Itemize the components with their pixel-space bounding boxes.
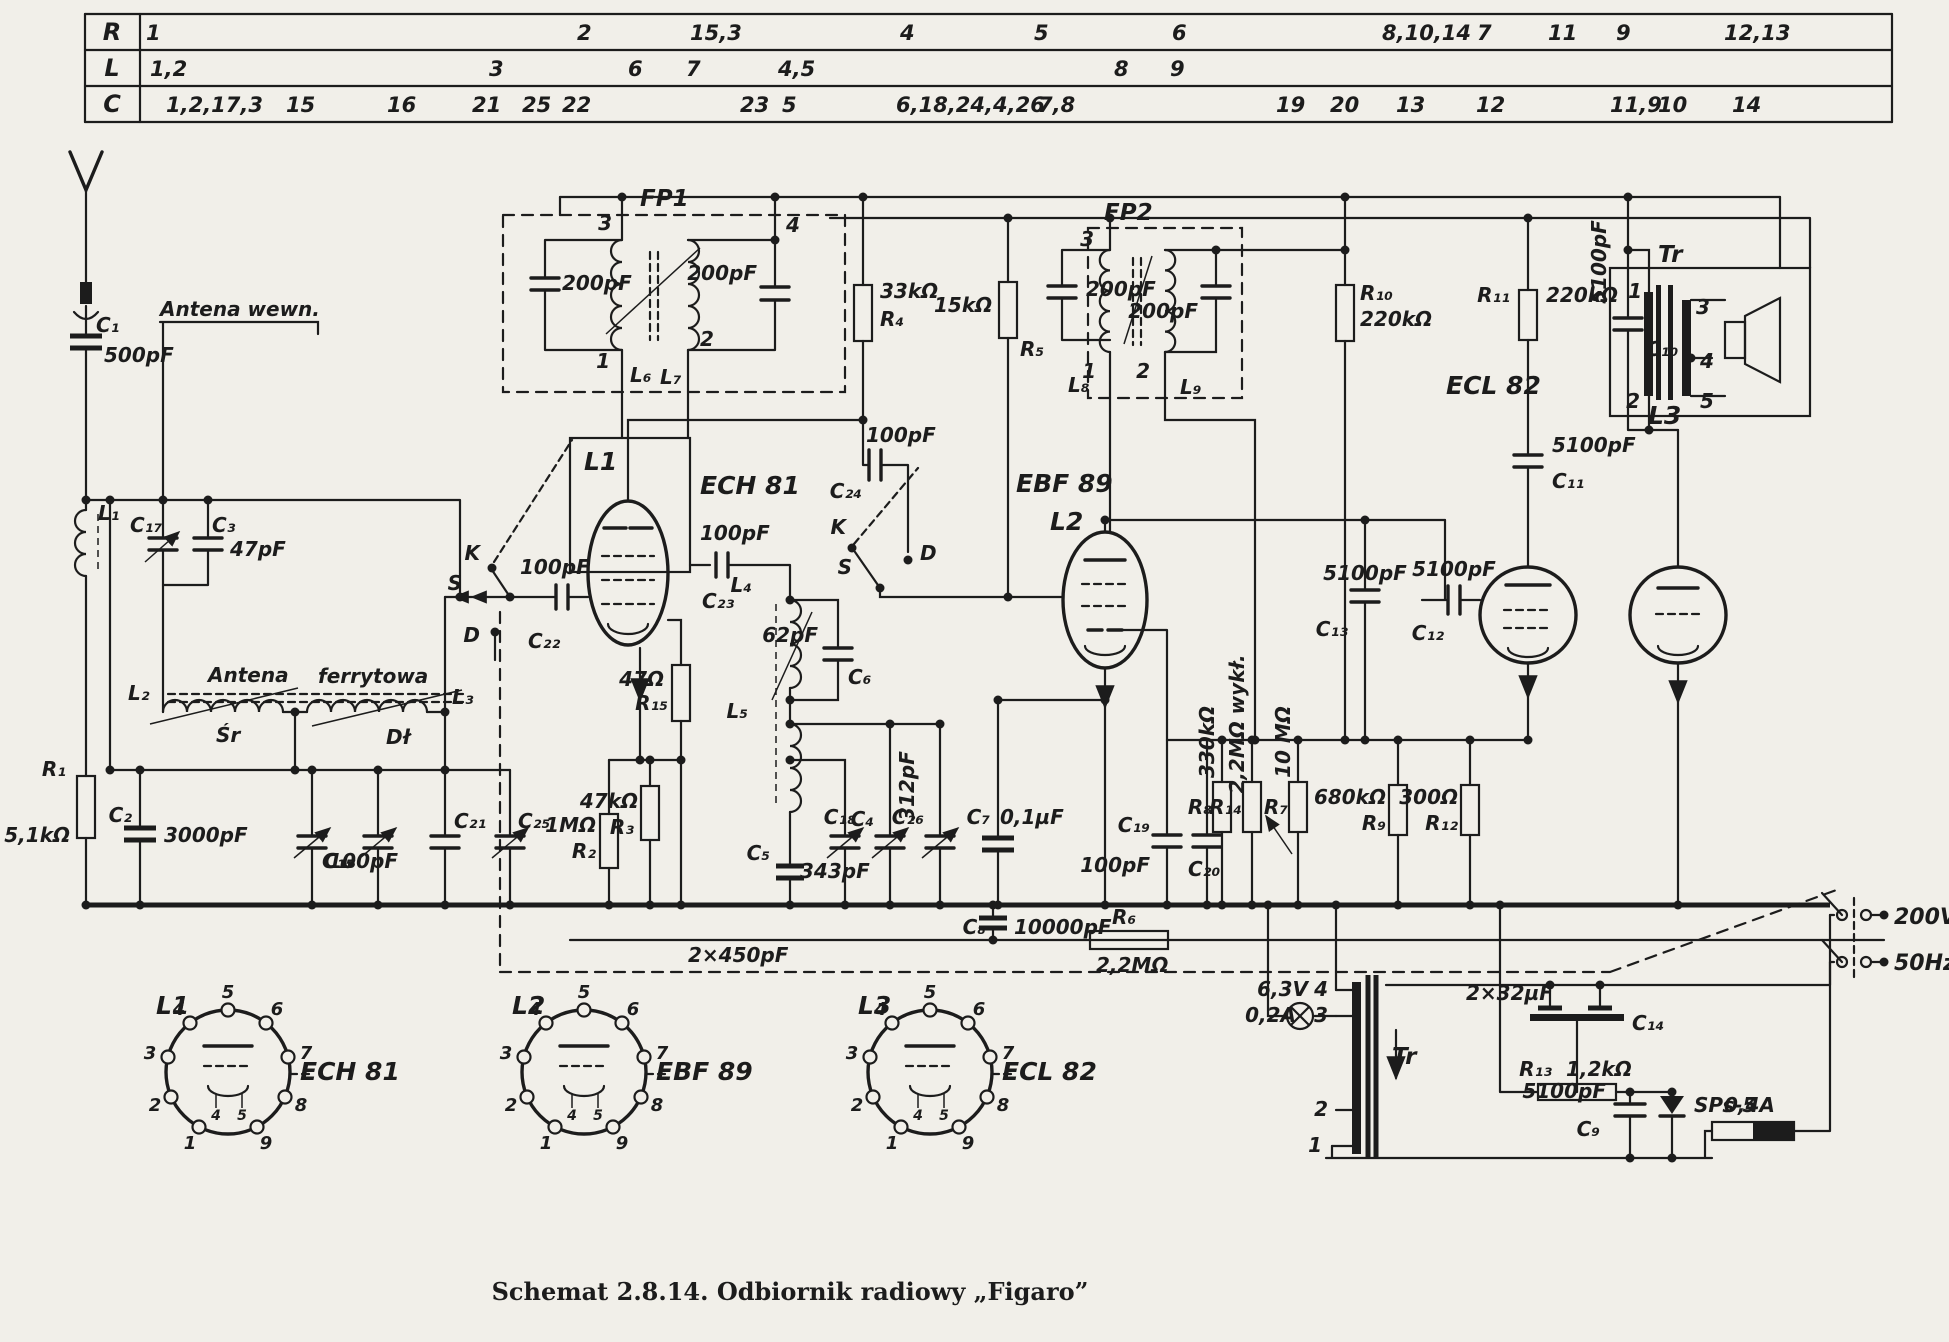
schematic-label: L₇	[660, 365, 682, 389]
schematic-label: 2	[700, 327, 714, 351]
schematic-label: 10 MΩ	[1271, 706, 1295, 778]
schematic-label: 47pF	[229, 537, 286, 561]
schematic-label: C₁₇	[130, 513, 162, 537]
schematic-label: 6	[973, 999, 986, 1020]
table-cell: 8,10,14	[1382, 21, 1471, 45]
schematic-label: R₁₄	[1209, 795, 1242, 819]
schematic-label: R₁₁	[1477, 283, 1510, 307]
reference-table-text: R1215,34568,10,14711912,13L1,23674,589C1…	[103, 18, 1791, 118]
schematic-label: 47kΩ	[579, 789, 638, 813]
schematic-label: 3	[1080, 227, 1094, 251]
schematic-label: C₁₁	[1552, 469, 1584, 493]
schematic-label: 5100pF	[1587, 220, 1611, 304]
schematic-label: C₃	[212, 513, 236, 537]
schematic-label: 100pF	[1080, 853, 1150, 877]
schematic-label: ECL 82	[1002, 1057, 1097, 1086]
schematic-label: Antena wewn.	[158, 297, 320, 321]
table-cell: 10	[1658, 93, 1687, 117]
schematic-label: 4	[528, 999, 542, 1020]
table-cell: 12	[1476, 93, 1505, 117]
table-cell: 5	[1034, 21, 1049, 45]
schematic-label: C₁₉	[1118, 813, 1150, 837]
schematic-label: 2×32µF	[1466, 981, 1553, 1005]
table-cell: 12,13	[1724, 21, 1790, 45]
schematic-label: 8	[651, 1095, 664, 1116]
schematic-label: 6	[627, 999, 640, 1020]
schematic-label: 3	[500, 1043, 513, 1064]
schematic-label: C₂₂	[528, 629, 560, 653]
schematic-label: 2,2MΩ wykł.	[1225, 654, 1249, 793]
schematic-label: 7	[656, 1043, 669, 1064]
schematic-label: 0,4A	[1724, 1093, 1775, 1117]
schematic-label: C₆	[848, 665, 872, 689]
schematic-label: R₇	[1264, 795, 1288, 819]
schematic-label: 200pF	[1086, 277, 1156, 301]
schematic-label: 9	[962, 1133, 975, 1154]
schematic-label: 0,2A	[1245, 1003, 1296, 1027]
schematic-label: 2	[1314, 1097, 1328, 1121]
schematic-label: 3	[144, 1043, 157, 1064]
schematic-label: 8	[295, 1095, 308, 1116]
schematic-label: R₁	[42, 757, 66, 781]
schematic-label: C₁₄	[1632, 1011, 1664, 1035]
schematic-label: 200pF	[1128, 299, 1198, 323]
schematic-label: 2	[1136, 359, 1150, 383]
schematic-label: 3000pF	[164, 823, 248, 847]
schematic-label: 220kΩ	[1360, 307, 1432, 331]
schematic-label: 200pF	[687, 261, 757, 285]
schematic-label: 5	[222, 982, 235, 1003]
schematic-label: R₆	[1112, 905, 1136, 929]
schematic-label: EBF 89	[656, 1057, 753, 1086]
schematic-label: 4	[1699, 349, 1714, 373]
schematic-label: 5	[939, 1108, 949, 1124]
caption: Schemat 2.8.14. Odbiornik radiowy „Figar…	[492, 1277, 1089, 1306]
schematic-label: 2	[505, 1095, 518, 1116]
schematic-label: 5,1kΩ	[4, 823, 70, 847]
table-cell: 7	[1477, 21, 1492, 45]
schematic-label: D	[463, 623, 480, 647]
table-cell: 19	[1276, 93, 1305, 117]
schematic-label: 2,2MΩ	[1096, 953, 1168, 977]
schematic-label: L₂	[128, 681, 150, 705]
schematic-label: C₁₂	[1412, 621, 1444, 645]
schematic-label: 330kΩ	[1195, 706, 1219, 778]
schematic-label: S	[838, 555, 852, 579]
schematic-label: 0,1µF	[1000, 805, 1064, 829]
schematic-label: 200pF	[562, 271, 632, 295]
table-cell: 21	[472, 93, 501, 117]
schematic-label: L1	[584, 447, 617, 476]
schematic-label: 4	[210, 1108, 221, 1124]
schematic-label: ECH 81	[300, 1057, 400, 1086]
schematic-label: 2×450pF	[688, 943, 789, 967]
schematic-label: 100pF	[520, 555, 590, 579]
schematic-label: 7	[1002, 1043, 1015, 1064]
schematic-label: 1	[1308, 1133, 1322, 1157]
radio-schematic-svg: R1215,34568,10,14711912,13L1,23674,589C1…	[0, 0, 1949, 1342]
schematic-label: C₁₃	[1316, 617, 1348, 641]
schematic-label: 100pF	[328, 849, 398, 873]
schematic-label: 33kΩ	[880, 279, 938, 303]
table-cell: 14	[1732, 93, 1761, 117]
schematic-label: 5100pF	[1323, 561, 1407, 585]
schematic-label: R₃	[610, 815, 634, 839]
schematic-label: 5	[1700, 389, 1714, 413]
table-cell: 15,3	[690, 21, 742, 45]
schematic-label: C₂₆	[892, 805, 924, 829]
schematic-label: R₁₀	[1360, 281, 1393, 305]
schematic-label: 680kΩ	[1314, 785, 1386, 809]
table-cell: 7	[686, 57, 701, 81]
schematic-label: C₂₁	[454, 809, 486, 833]
schematic-label: R₁₃	[1519, 1057, 1552, 1081]
schematic-label: L₅	[726, 699, 748, 723]
table-cell: 6,18,24,4,26	[896, 93, 1045, 117]
table-cell: 6	[628, 57, 643, 81]
table-cell: 23	[740, 93, 769, 117]
schematic-label: 3	[598, 211, 612, 235]
schematic-label: 3	[846, 1043, 859, 1064]
table-row-header: R	[103, 18, 121, 46]
table-cell: 25	[522, 93, 551, 117]
schematic-label: 5	[593, 1108, 603, 1124]
schematic-label: C₂₀	[1188, 857, 1220, 881]
schematic-label: 300Ω	[1399, 785, 1458, 809]
schematic-label: 4	[785, 213, 800, 237]
schematic-label: Dł	[386, 725, 413, 749]
schematic-label: R₉	[1362, 811, 1386, 835]
schematic-label: C₂	[109, 803, 133, 827]
schematic-label: 4	[912, 1108, 923, 1124]
schematic-label: Antena	[206, 663, 289, 687]
table-cell: 2	[577, 21, 592, 45]
schematic-label: 5100pF	[1552, 433, 1636, 457]
schematic-label: 7	[300, 1043, 313, 1064]
table-cell: 20	[1330, 93, 1359, 117]
table-cell: 1,2	[150, 57, 187, 81]
schematic-label: ECL 82	[1446, 371, 1541, 400]
schematic-label: 5	[237, 1108, 247, 1124]
schematic-label: 10000pF	[1014, 915, 1112, 939]
table-row-header: C	[103, 90, 121, 118]
schematic-label: 200V	[1894, 905, 1949, 930]
schematic-label: 50Hz	[1894, 951, 1949, 976]
schematic-label: 9	[260, 1133, 273, 1154]
schematic-label: 343pF	[800, 859, 870, 883]
schematic-label: 2	[851, 1095, 864, 1116]
table-cell: 11,9	[1610, 93, 1662, 117]
schematic-label: C₉	[1577, 1117, 1601, 1141]
schematic-label: R₁₂	[1425, 811, 1458, 835]
schematic-label: 100pF	[700, 521, 770, 545]
schematic-label: 500pF	[104, 343, 174, 367]
schematic-label: 9	[616, 1133, 629, 1154]
table-cell: 4,5	[777, 57, 815, 81]
schematic-label: C₁₀	[1646, 337, 1678, 361]
schematic-label: 4	[566, 1108, 577, 1124]
table-cell: 1	[146, 21, 161, 45]
schematic-label: 1	[540, 1133, 553, 1154]
schematic-label: Tr	[1392, 1044, 1418, 1070]
schematic-label: C₅	[747, 841, 770, 865]
schematic-label: 3	[1314, 1003, 1328, 1027]
schematic-label: 3	[1696, 295, 1710, 319]
schematic-label: 100pF	[866, 423, 936, 447]
schematic-label: 15kΩ	[934, 293, 992, 317]
table-cell: 1,2,17,3	[166, 93, 263, 117]
table-cell: 6	[1172, 21, 1187, 45]
schematic-label: L2	[1050, 507, 1083, 536]
schematic-label: R₁₅	[635, 691, 668, 715]
schematic-label: EBF 89	[1016, 469, 1113, 498]
schematic-label: 5	[924, 982, 937, 1003]
schematic-label: D	[920, 541, 937, 565]
schematic-label: 5	[578, 982, 591, 1003]
table-cell: 9	[1616, 21, 1631, 45]
schematic-label: 6	[271, 999, 284, 1020]
schematic-label: 1MΩ	[545, 813, 596, 837]
table-cell: 7,8	[1038, 93, 1075, 117]
schematic-label: 1	[596, 349, 610, 373]
schematic-label: L₉	[1180, 375, 1202, 399]
table-cell: 15	[286, 93, 315, 117]
table-cell: 3	[489, 57, 504, 81]
schematic-label: 8	[997, 1095, 1010, 1116]
schematic-label: 5100pF	[1412, 557, 1496, 581]
schematic-label: 1	[886, 1133, 899, 1154]
table-cell: 5	[782, 93, 797, 117]
schematic-label: 1,2kΩ	[1566, 1057, 1632, 1081]
schematic-page: R1215,34568,10,14711912,13L1,23674,589C1…	[0, 0, 1949, 1342]
schematic-label: L₈	[1068, 373, 1090, 397]
schematic-label: ferrytowa	[318, 664, 428, 688]
table-row-header: L	[104, 54, 119, 82]
schematic-label: Tr	[1658, 242, 1684, 268]
schematic-label: L3	[1648, 401, 1681, 430]
table-cell: 4	[899, 21, 915, 45]
schematic-label: 4	[1313, 977, 1328, 1001]
schematic-label: C₇	[967, 805, 991, 829]
schematic-label: C₈	[963, 915, 987, 939]
schematic-label: 1	[184, 1133, 197, 1154]
schematic-label: FP1	[640, 186, 689, 212]
schematic-label: Śr	[216, 723, 241, 747]
schematic-label: R₄	[880, 307, 904, 331]
schematic-label: R₅	[1020, 337, 1044, 361]
schematic-label: 2	[149, 1095, 162, 1116]
schematic-label: 62pF	[762, 623, 818, 647]
table-cell: 13	[1396, 93, 1425, 117]
schematic-label: K	[831, 515, 848, 539]
schematic-label: K	[465, 541, 482, 565]
schematic-label: S	[448, 571, 462, 595]
schematic-label: L₄	[730, 573, 752, 597]
schematic-label: 6,3V	[1257, 977, 1309, 1001]
schematic-label: L₃	[452, 685, 474, 709]
schematic-label: L₆	[630, 363, 652, 387]
schematic-label: C₁	[96, 313, 119, 337]
schematic-label: FP2	[1104, 200, 1153, 226]
table-cell: 16	[387, 93, 416, 117]
table-cell: 9	[1170, 57, 1185, 81]
schematic-label: 2	[1626, 389, 1640, 413]
schematic-label: 4	[172, 999, 186, 1020]
schematic-label: R₂	[572, 839, 596, 863]
schematic-label: 1	[1628, 279, 1642, 303]
tube-sockets	[162, 1004, 1015, 1135]
schematic-label: ECH 81	[700, 471, 800, 500]
schematic-label: C₄	[851, 807, 874, 831]
schematic-label: C₂₄	[830, 479, 862, 503]
table-cell: 22	[562, 93, 591, 117]
schematic-label: L₁	[98, 501, 120, 525]
schematic-label: 5100pF	[1522, 1079, 1606, 1103]
schematic-label: 47Ω	[618, 667, 664, 691]
table-cell: 11	[1548, 21, 1577, 45]
schematic-label: 4	[874, 999, 888, 1020]
table-cell: 8	[1114, 57, 1129, 81]
